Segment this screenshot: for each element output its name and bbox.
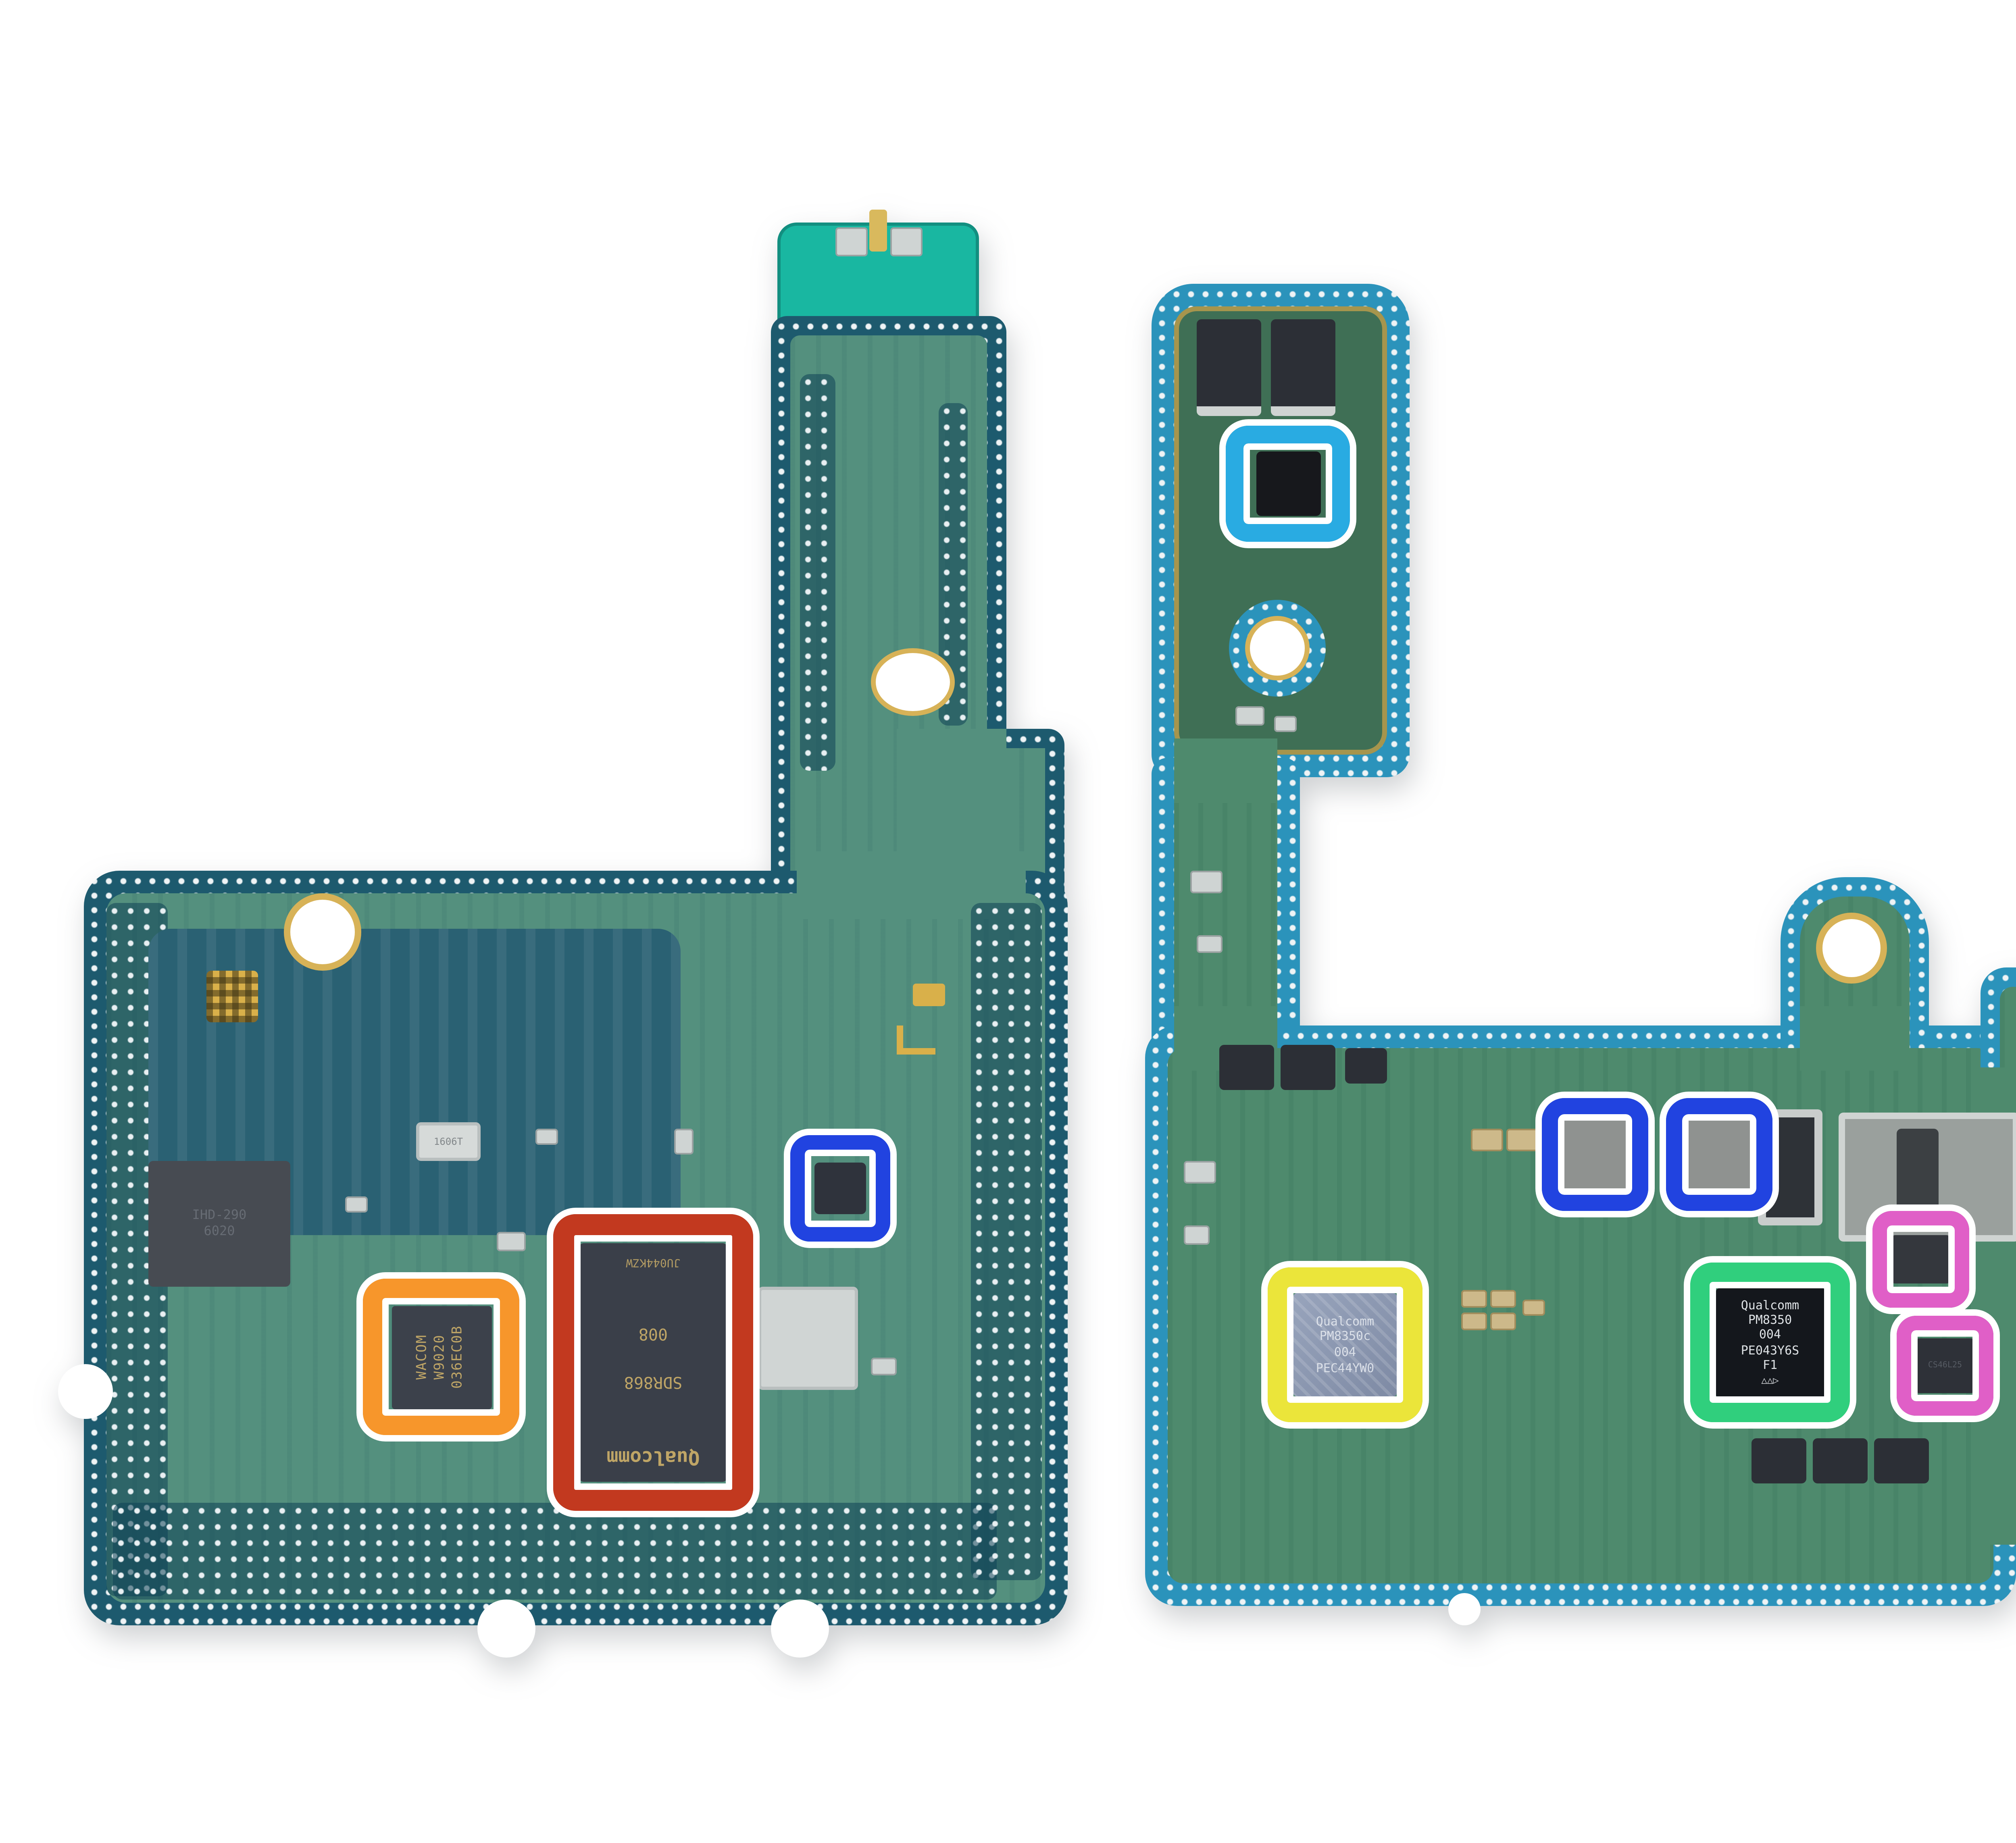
callout-pink-1 xyxy=(1872,1211,1969,1308)
passive-component xyxy=(1184,1225,1210,1245)
inductor xyxy=(1197,319,1261,416)
passive-component xyxy=(1461,1313,1487,1330)
callout-cyan xyxy=(1226,426,1350,542)
passive-component xyxy=(1274,716,1297,732)
screw-hole xyxy=(1245,616,1310,680)
chip-component xyxy=(1897,1129,1939,1219)
callout-ring xyxy=(1226,426,1350,542)
right-board: Qualcomm PM8350c 004 PEC44YW0 Qualcomm P… xyxy=(0,0,2016,1843)
callout-ring xyxy=(1690,1263,1850,1422)
callout-green: Qualcomm PM8350 004 PE043Y6S F1 △△▷ xyxy=(1690,1263,1850,1422)
callout-ring xyxy=(1872,1211,1969,1308)
callout-ring xyxy=(1666,1098,1772,1211)
inductor xyxy=(1813,1438,1868,1483)
passive-component xyxy=(1197,935,1223,953)
screw-hole xyxy=(1816,913,1887,984)
chip-component xyxy=(1219,1045,1274,1090)
chip-component xyxy=(1281,1045,1335,1090)
passive-component xyxy=(1506,1129,1539,1151)
chip-component xyxy=(1345,1048,1387,1084)
passive-component xyxy=(1235,706,1264,726)
teardown-photo: IHD-290 6020 1606T WACOM W9020 036EC0B xyxy=(0,0,2016,1843)
passive-component xyxy=(1190,871,1223,893)
callout-yellow: Qualcomm PM8350c 004 PEC44YW0 xyxy=(1268,1267,1422,1422)
callout-ring xyxy=(1268,1267,1422,1422)
callout-blue-right-2 xyxy=(1666,1098,1772,1211)
passive-component xyxy=(1471,1129,1503,1151)
edge-notch xyxy=(1448,1593,1481,1625)
passive-component xyxy=(1184,1161,1216,1184)
inductor xyxy=(1874,1438,1929,1483)
passive-component xyxy=(1490,1290,1516,1308)
passive-component xyxy=(1522,1300,1545,1316)
inductor xyxy=(1752,1438,1806,1483)
callout-ring xyxy=(1897,1316,1993,1416)
board-surface xyxy=(1800,1006,1910,1071)
passive-component xyxy=(1461,1290,1487,1308)
inductor xyxy=(1271,319,1335,416)
page-scaler: IHD-290 6020 1606T WACOM W9020 036EC0B xyxy=(0,0,2016,1843)
passive-component xyxy=(1490,1313,1516,1330)
callout-blue-right-1 xyxy=(1542,1098,1648,1211)
callout-pink-2: CS46L25 xyxy=(1897,1316,1993,1416)
callout-ring xyxy=(1542,1098,1648,1211)
board-surface xyxy=(1174,738,1277,803)
